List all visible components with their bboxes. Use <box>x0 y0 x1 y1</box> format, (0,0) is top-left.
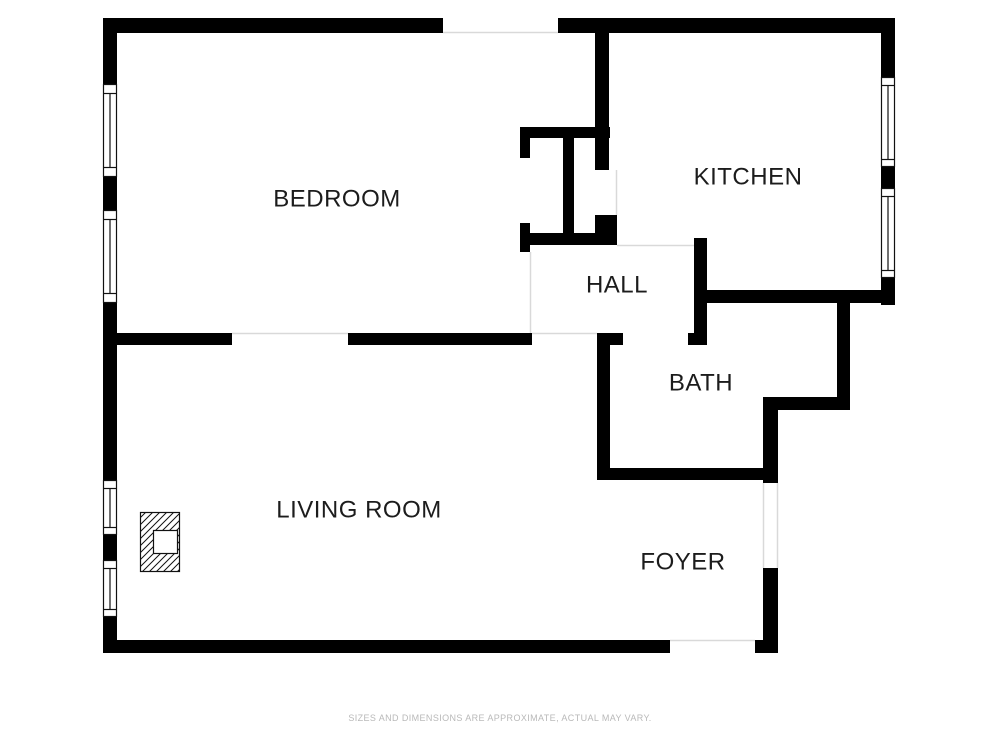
fireplace-symbol <box>141 513 180 572</box>
room-label-bedroom: BEDROOM <box>273 186 401 213</box>
wall-left-b <box>103 177 117 210</box>
walls <box>103 18 895 653</box>
window-symbol <box>882 78 895 167</box>
wall-closet-stub-bottom <box>520 223 530 252</box>
wall-hall-right <box>694 238 707 343</box>
room-label-foyer: FOYER <box>640 549 725 576</box>
wall-top-right-segment <box>558 18 895 33</box>
wall-left-d <box>103 535 117 560</box>
windows <box>104 78 895 617</box>
wall-right-b <box>881 167 895 188</box>
wall-bath-bottom <box>597 468 778 480</box>
wall-bath-left <box>597 343 610 480</box>
wall-top-left-segment <box>103 18 443 33</box>
window-symbol <box>104 85 117 177</box>
room-label-bath: BATH <box>669 370 733 397</box>
window-symbol <box>104 561 117 617</box>
room-label-kitchen: KITCHEN <box>694 164 803 191</box>
window-symbol <box>104 211 117 303</box>
room-label-living-room: LIVING ROOM <box>276 497 442 524</box>
room-labels: BEDROOM KITCHEN HALL BATH LIVING ROOM FO… <box>273 164 802 576</box>
wall-closet-top-bar <box>520 127 610 138</box>
wall-bath-right-upper <box>837 303 850 410</box>
floor-plan-page: BEDROOM KITCHEN HALL BATH LIVING ROOM FO… <box>0 0 1000 750</box>
wall-foyer-bottom-stub <box>755 640 778 653</box>
wall-kitchen-bottom <box>707 290 895 303</box>
wall-left-a <box>103 18 117 84</box>
wall-divider-a <box>103 333 232 345</box>
wall-left-c <box>103 303 117 480</box>
wall-closet-bottom-bar <box>520 233 617 245</box>
wall-divider-d <box>688 333 707 345</box>
room-label-hall: HALL <box>586 272 648 299</box>
window-symbol <box>104 481 117 535</box>
wall-closet-stub-top <box>520 127 530 158</box>
wall-right-a <box>881 18 895 77</box>
disclaimer-text: SIZES AND DIMENSIONS ARE APPROXIMATE, AC… <box>348 713 651 723</box>
wall-bottom <box>103 640 670 653</box>
floor-plan-drawing: BEDROOM KITCHEN HALL BATH LIVING ROOM FO… <box>0 0 1000 750</box>
window-symbol <box>882 189 895 278</box>
wall-closet-divider <box>563 137 574 238</box>
wall-divider-b <box>348 333 532 345</box>
wall-kitchen-left <box>595 33 609 170</box>
